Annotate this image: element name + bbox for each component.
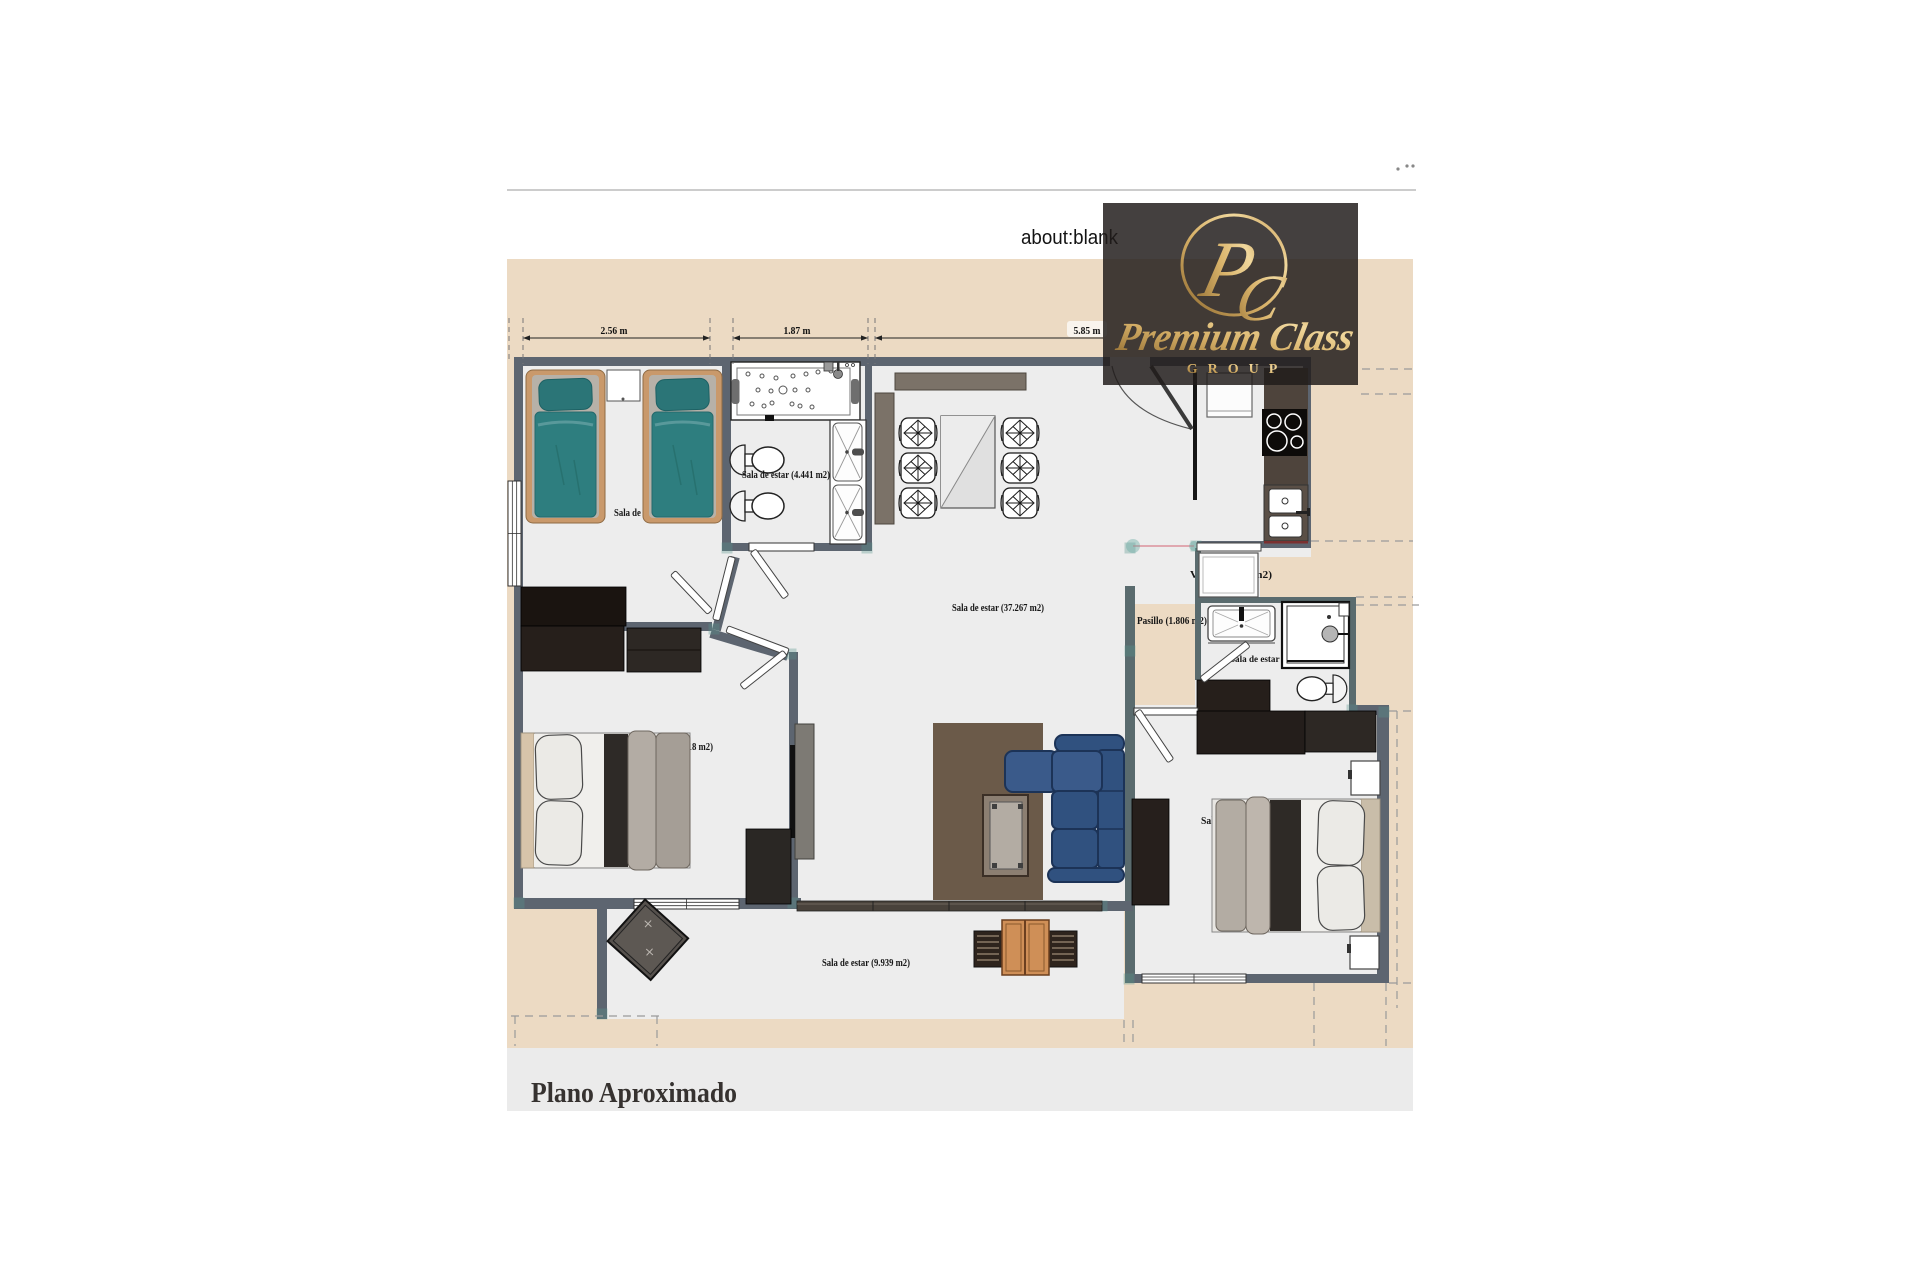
svg-text:5.85 m: 5.85 m [1074, 325, 1101, 337]
svg-text:Sala de estar (9.939 m2): Sala de estar (9.939 m2) [822, 958, 910, 969]
svg-text:GROUP: GROUP [1187, 362, 1288, 377]
svg-text:2.56 m: 2.56 m [601, 325, 628, 337]
svg-text:1.87 m: 1.87 m [784, 325, 811, 337]
svg-text:Sala de estar (37.267 m2): Sala de estar (37.267 m2) [952, 603, 1044, 614]
svg-text:Premium Class: Premium Class [1112, 314, 1358, 359]
svg-text:Sala de estar (4.441 m2): Sala de estar (4.441 m2) [742, 470, 830, 481]
svg-text:Plano Aproximado: Plano Aproximado [531, 1078, 737, 1109]
